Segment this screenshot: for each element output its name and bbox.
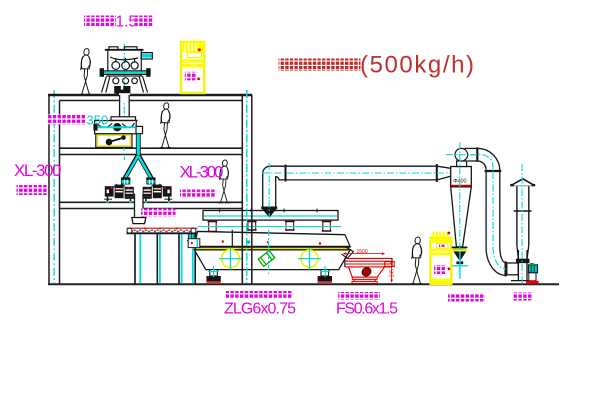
svg-text:XL-300: XL-300	[14, 161, 62, 180]
svg-text:(500kg/h): (500kg/h)	[360, 52, 474, 79]
svg-text:350: 350	[87, 113, 109, 128]
svg-text:1.5: 1.5	[116, 14, 138, 31]
svg-text:XL-300: XL-300	[180, 163, 224, 182]
svg-text:345: 345	[390, 269, 396, 278]
svg-text:ZLG6x0.75: ZLG6x0.75	[224, 301, 296, 318]
svg-text:1500: 1500	[357, 249, 368, 255]
svg-text:FS0.6x1.5: FS0.6x1.5	[336, 301, 398, 318]
